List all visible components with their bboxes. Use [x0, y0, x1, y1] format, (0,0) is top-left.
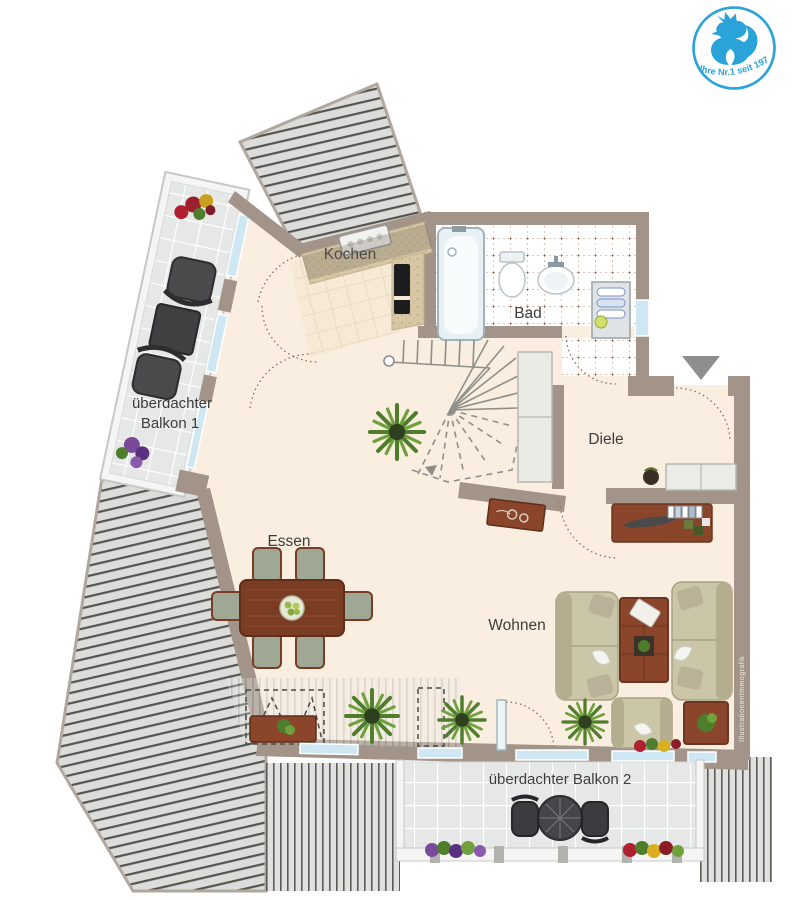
floor-plan-canvas: Kochen Bad	[0, 0, 792, 900]
entrance-arrow-icon	[682, 356, 720, 380]
balkon1-label-line2: Balkon 1	[141, 415, 199, 432]
fruit-bowl	[280, 596, 304, 620]
wohnen-label: Wohnen	[488, 617, 545, 634]
balcony-2-railing-right	[696, 760, 704, 860]
diele-decor-bowl	[643, 469, 659, 486]
balkon2-label: überdachter Balkon 2	[489, 771, 632, 788]
bath-window	[635, 300, 649, 336]
diele-sideboard	[666, 464, 736, 490]
dining-table	[240, 580, 344, 636]
roof-bottom-left-section	[266, 763, 400, 891]
bath-cabinet-towels	[592, 282, 630, 338]
balcony-2-door-leaf	[497, 700, 506, 750]
sofa-right	[672, 582, 732, 700]
plant-by-stairs	[370, 405, 424, 459]
sloped-ceiling-overlay	[226, 678, 462, 748]
kitchen-cooktop	[394, 296, 410, 300]
balkon1-label-line1: überdachter	[132, 395, 212, 412]
bathtub	[438, 226, 484, 340]
balcony-2-chair-left	[512, 797, 538, 837]
toilet	[499, 252, 525, 297]
plant-living-1	[563, 700, 607, 744]
kitchen-cooktop	[394, 264, 410, 314]
roof-bottom-right-section	[700, 757, 772, 882]
company-logo: Ihre Nr.1 seit 1975	[687, 0, 774, 88]
desk-books	[668, 506, 702, 518]
diele-desk	[612, 504, 712, 542]
watermark: IllustrationenImmografik	[739, 656, 746, 742]
sofa-left	[556, 592, 618, 700]
plant-living-2	[439, 697, 485, 743]
floor-plan-page: Kochen Bad	[0, 0, 792, 900]
plant-dining	[346, 690, 398, 742]
coffee-table	[620, 598, 668, 682]
side-table	[684, 702, 728, 744]
balcony-2-table	[538, 796, 582, 840]
balcony-2-chair-right	[582, 802, 608, 842]
stairs-newel-post	[384, 356, 394, 366]
bath-label: Bad	[514, 305, 542, 322]
balcony-2-railing-left	[396, 760, 404, 860]
diele-label: Diele	[588, 431, 623, 448]
hall-wardrobe	[518, 352, 552, 482]
bath-vestibule-floor	[562, 338, 636, 376]
dining-chest	[250, 716, 316, 742]
